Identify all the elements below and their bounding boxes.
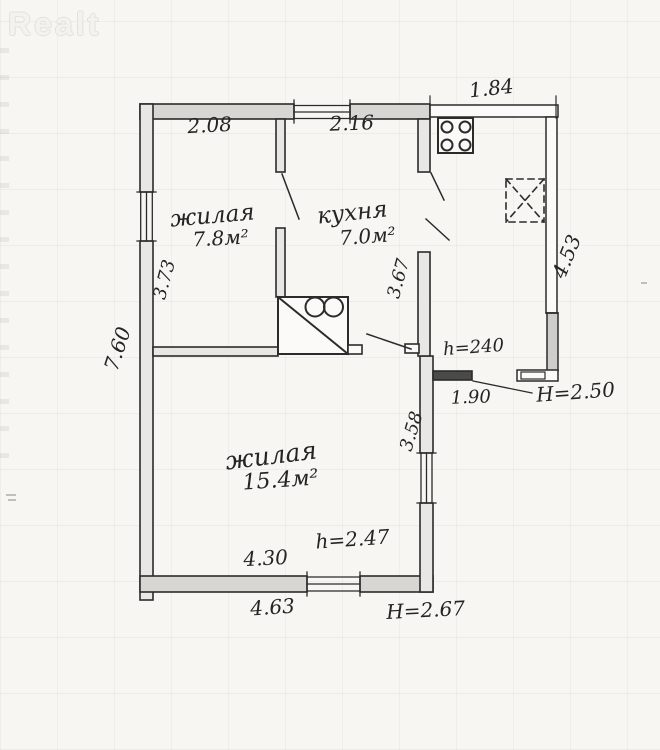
dim-porch-opening: 1.90 — [450, 386, 491, 408]
dim-large-room-width: 4.30 — [242, 545, 289, 571]
dim-house-depth: 7.60 — [99, 324, 136, 374]
note-porch-height: H=2.50 — [534, 377, 615, 407]
dim-porch-width: 1.84 — [468, 74, 515, 103]
door-jambs — [348, 344, 419, 354]
note-porch-ceiling-height: h=240 — [442, 335, 504, 360]
dim-house-width: 4.63 — [248, 593, 295, 620]
room-area-living-large: 15.4м² — [242, 465, 320, 495]
door-leaf-kitchen-porch-2 — [426, 219, 449, 240]
porch-stove-symbol — [438, 118, 473, 153]
scanned-floor-plan-page: Realt — [0, 0, 660, 750]
dim-left-room-depth: 3.73 — [149, 258, 180, 302]
note-large-room-ceiling: h=2.47 — [315, 524, 391, 553]
door-leaf-large-room — [367, 334, 411, 349]
door-leaf-kitchen-porch-1 — [431, 173, 444, 200]
window-bottom-wall — [307, 572, 360, 596]
window-right-wall — [417, 453, 436, 503]
dim-top-left-room-width: 2.08 — [186, 112, 233, 138]
window-left-wall — [137, 192, 156, 241]
floor-plan-drawing: 2.08 2.16 1.84 жилая 7.8м² кухня 7.0м² 3… — [0, 0, 660, 750]
dim-kitchen-width: 2.16 — [328, 110, 375, 136]
room-area-kitchen: 7.0м² — [339, 222, 397, 250]
room-area-living-small: 7.8м² — [192, 225, 250, 252]
attic-hatch-symbol — [506, 179, 544, 222]
dim-kitchen-depth: 3.67 — [383, 256, 414, 301]
note-house-height: H=2.67 — [385, 596, 466, 624]
porch-step — [433, 371, 472, 380]
door-leaf-partition — [282, 174, 299, 219]
stove-symbol — [278, 297, 348, 354]
